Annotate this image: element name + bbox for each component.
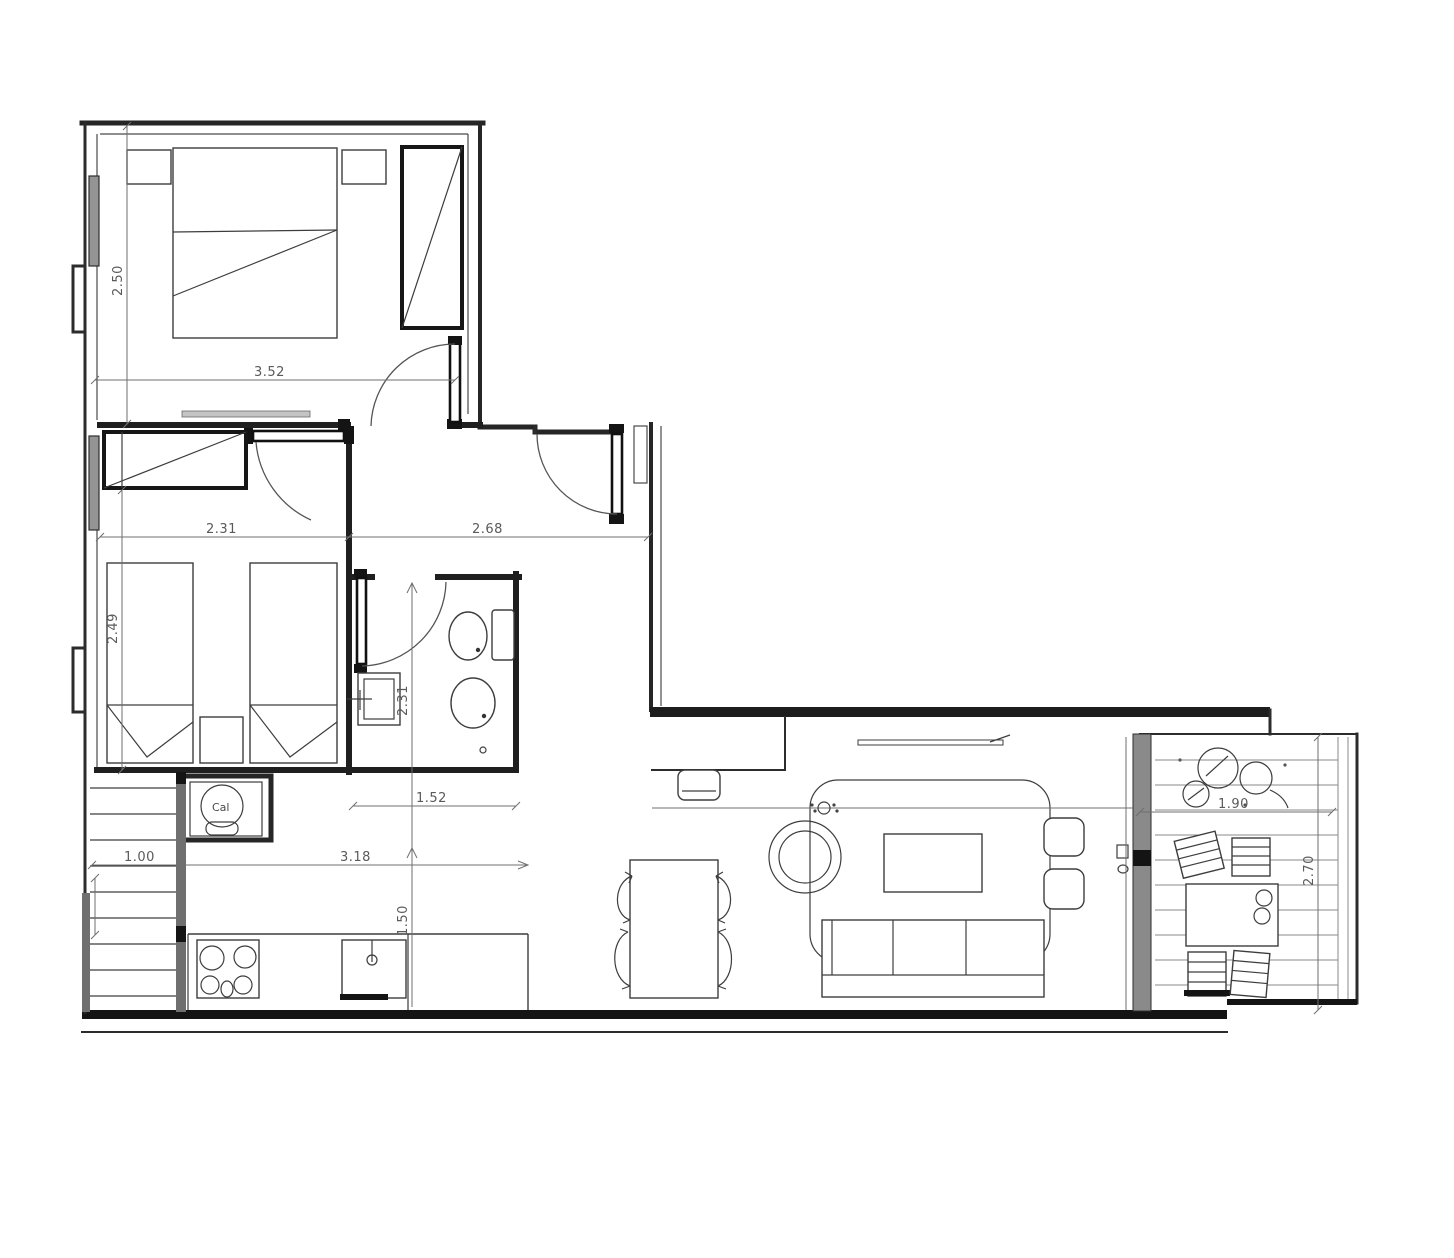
dim-terrace-width: 1.90 <box>1218 797 1249 812</box>
bedroom-1 <box>127 147 462 417</box>
terrace-chair <box>1174 831 1224 878</box>
terrace-chair <box>1232 838 1270 876</box>
stairs <box>90 788 176 996</box>
kitchen-sink <box>340 940 406 1000</box>
toilet <box>449 610 514 660</box>
dim-bedroom1-depth: 2.50 <box>111 265 126 296</box>
door-bedroom2 <box>244 426 354 520</box>
double-bed <box>173 148 337 338</box>
terrace-table <box>1186 884 1278 946</box>
wall-cabinet <box>678 770 720 800</box>
dim-hall-width: 2.68 <box>472 522 503 537</box>
pouf-bottom <box>1044 869 1084 909</box>
nightstand-left <box>127 150 171 184</box>
terrace-sliding-door <box>1133 734 1151 1011</box>
bathroom <box>347 610 514 753</box>
terrace-chair <box>1230 951 1270 998</box>
shelf <box>182 411 310 417</box>
tv <box>858 740 1003 745</box>
window-bedroom2 <box>89 436 99 530</box>
floor-plan-page: Cal <box>0 0 1454 1258</box>
door-bedroom1 <box>338 336 462 430</box>
sink <box>347 673 400 725</box>
sofa <box>822 920 1044 997</box>
dim-bedroom1-width: 3.52 <box>254 365 285 380</box>
wardrobe-bedroom1 <box>402 147 462 328</box>
stairs-right-wall <box>176 772 186 1012</box>
dining-chair <box>615 932 630 986</box>
side-table <box>769 821 841 893</box>
dim-kitchen-depth: 1.50 <box>396 905 411 936</box>
bidet <box>451 678 495 728</box>
floor-drain <box>480 747 486 753</box>
dim-terrace-depth: 2.70 <box>1302 855 1317 886</box>
bedroom-2 <box>104 432 337 763</box>
dim-bedroom2-width: 2.31 <box>206 522 237 537</box>
nightstand-right <box>342 150 386 184</box>
dim-kitchen-width: 3.18 <box>340 850 371 865</box>
dining-table <box>630 860 718 998</box>
door-bathroom <box>354 569 446 673</box>
floor-plan-drawing: Cal <box>0 0 1454 1258</box>
wardrobe-bedroom2 <box>104 432 246 488</box>
pouf-top <box>1044 818 1084 856</box>
living-room <box>615 735 1133 998</box>
coffee-table <box>884 834 982 892</box>
door-entrance <box>537 424 624 524</box>
dim-stairs-width: 1.00 <box>124 850 155 865</box>
twin-bed-left <box>107 563 193 763</box>
boiler-closet: Cal <box>190 782 262 836</box>
window-bedroom1 <box>89 176 99 266</box>
stove <box>197 940 259 998</box>
dining-chair <box>718 932 732 986</box>
dim-bathroom-depth: 2.31 <box>396 685 411 716</box>
kitchen <box>188 934 528 1010</box>
dining-area <box>615 860 732 998</box>
dim-bedroom2-depth: 2.49 <box>106 613 121 644</box>
nightstand-between-beds <box>200 717 243 763</box>
twin-bed-right <box>250 563 337 763</box>
terrace-chair <box>1184 952 1230 996</box>
dim-bathroom-width: 1.52 <box>416 791 447 806</box>
stairs-left-wall <box>82 893 90 1012</box>
boiler-label: Cal <box>212 801 229 814</box>
